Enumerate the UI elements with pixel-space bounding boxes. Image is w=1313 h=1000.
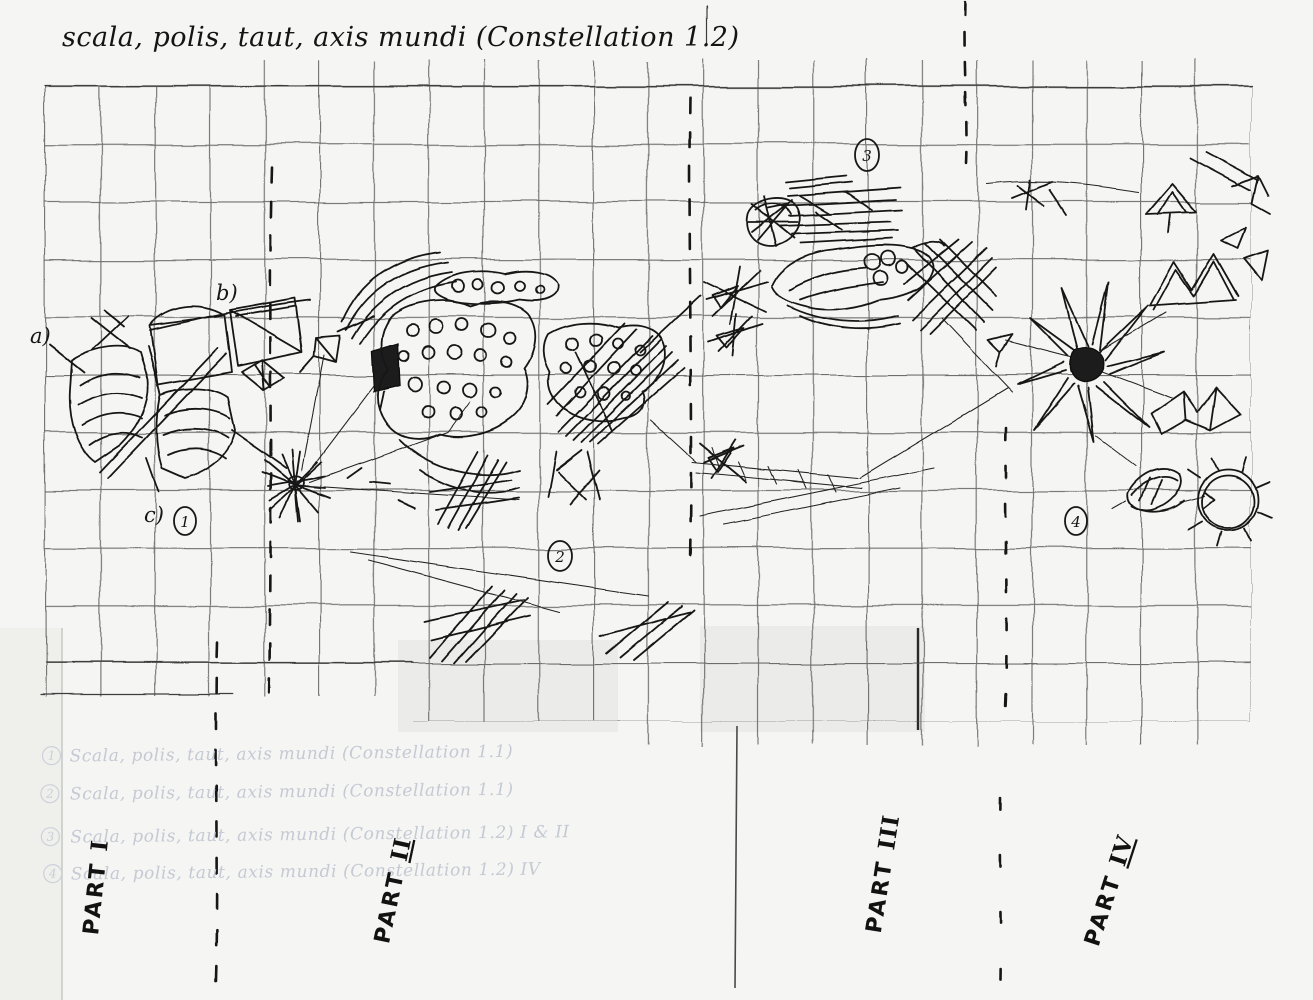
- svg-text:2: 2: [554, 548, 565, 566]
- svg-text:4: 4: [48, 867, 57, 881]
- part-1-label: PARTI: [77, 838, 114, 936]
- ghost-text-lines: 1 Scala, polis, taut, axis mundi (Conste…: [40, 741, 570, 885]
- sketch-scan: scala, polis, taut, axis mundi (Constell…: [0, 0, 1313, 1000]
- ghost-line-4: Scala, polis, taut, axis mundi (Constell…: [71, 860, 542, 885]
- svg-text:1: 1: [180, 513, 190, 531]
- svg-text:1: 1: [48, 749, 56, 763]
- part-3-label: PARTIII: [860, 813, 905, 935]
- constellation-drawing: scala, polis, taut, axis mundi (Constell…: [0, 0, 1313, 1000]
- annotation-a: a): [30, 324, 51, 348]
- ghost-line-1: Scala, polis, taut, axis mundi (Constell…: [69, 742, 513, 767]
- svg-text:2: 2: [45, 787, 54, 801]
- ghost-line-3: Scala, polis, taut, axis mundi (Constell…: [70, 822, 570, 847]
- svg-text:3: 3: [862, 147, 872, 165]
- part-4-label: PARTIV: [1078, 832, 1139, 950]
- part-2-label: PARTII: [368, 835, 417, 946]
- grid: [40, 6, 1251, 745]
- svg-text:4: 4: [1070, 513, 1081, 531]
- svg-text:3: 3: [46, 830, 54, 844]
- divider-bottom-right: [1000, 798, 1001, 1000]
- ghost-line-2: Scala, polis, taut, axis mundi (Constell…: [70, 780, 514, 805]
- annotation-c: c): [144, 503, 164, 527]
- annotation-b: b): [216, 281, 238, 305]
- page-title: scala, polis, taut, axis mundi (Constell…: [62, 22, 740, 53]
